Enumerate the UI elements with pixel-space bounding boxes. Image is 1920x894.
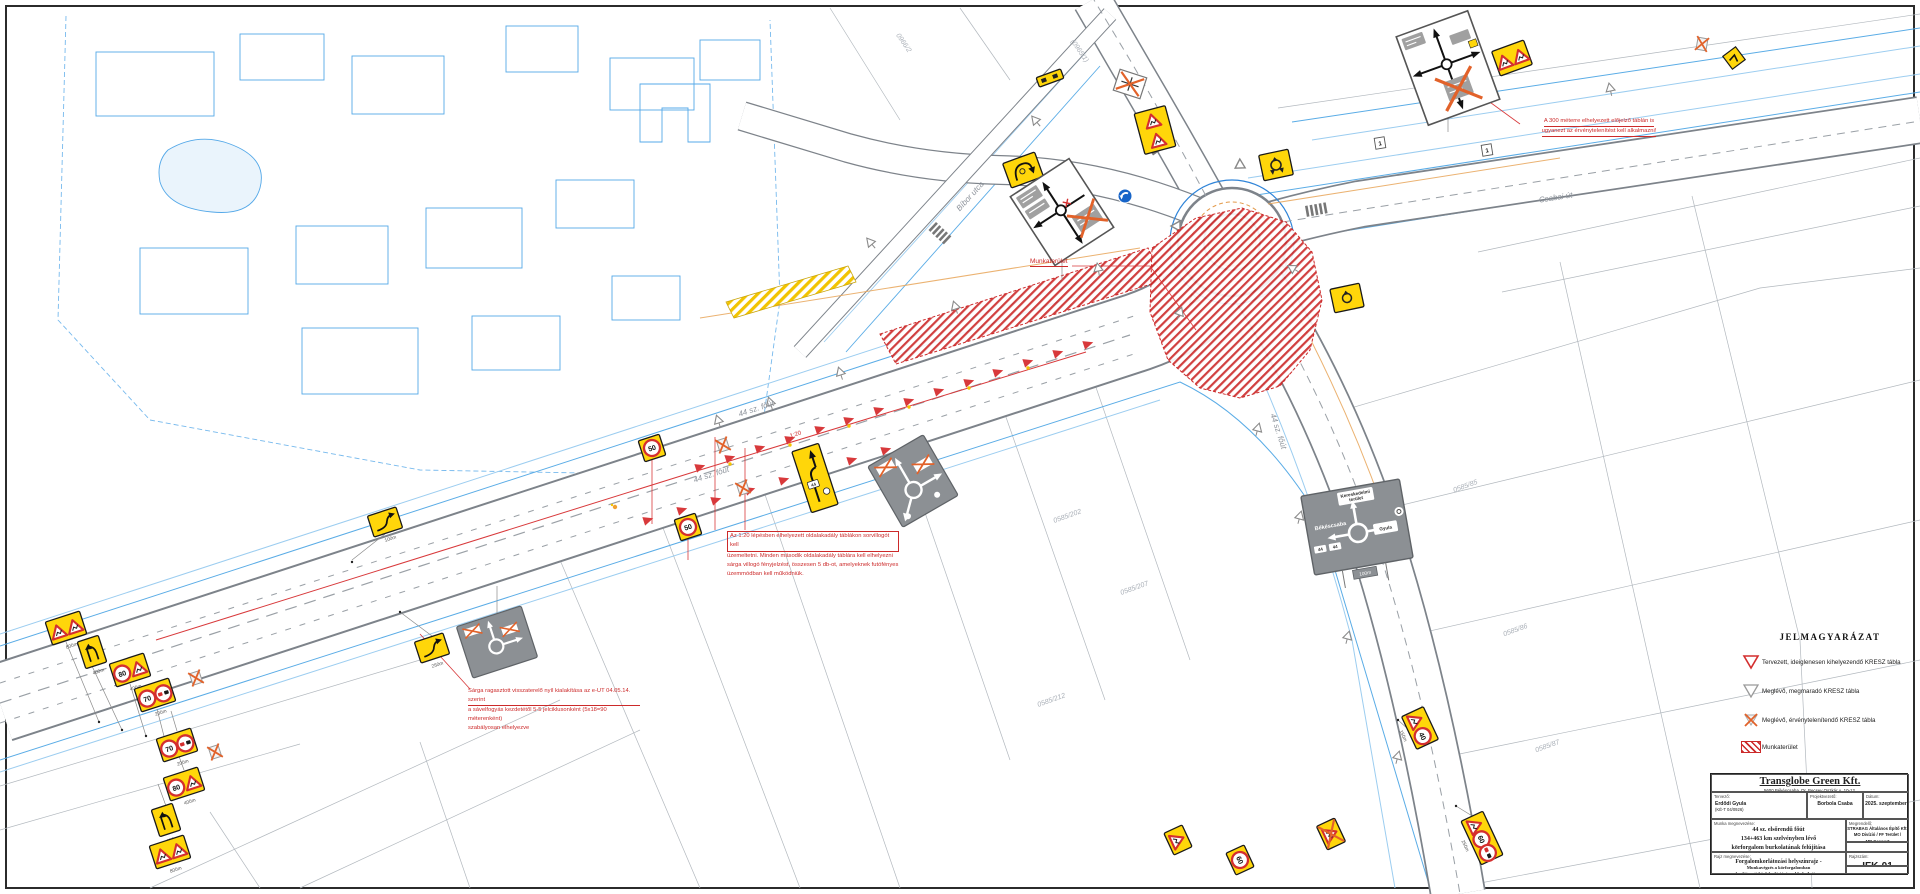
marker-1-b: 1: [1481, 144, 1493, 156]
sign-roadworks-small-a: [1164, 825, 1192, 855]
company-name: Transglobe Green Kft.: [1712, 776, 1908, 787]
svg-text:800m: 800m: [169, 865, 182, 874]
work-area-label: Munkaterület: [1030, 258, 1068, 267]
sign-roundabout-warning: [1259, 149, 1294, 181]
svg-text:0585/207: 0585/207: [1120, 580, 1151, 597]
svg-text:400m: 400m: [183, 797, 196, 806]
board-roundabout-gray-left: [456, 606, 537, 678]
sign-lane-shift-250: 250m: [414, 633, 452, 673]
work-area-icon: [1740, 741, 1762, 753]
sheet-frame: [6, 6, 1914, 888]
annotation-flasher-note: Az 1:20 lépésben elhelyezett oldalakadál…: [727, 531, 899, 579]
drawing-name-cell: Rajz megnevezése: Forgalomkorlátozási he…: [1711, 852, 1846, 874]
existing-sign-icon: [1740, 683, 1762, 699]
legend-title: JELMAGYARÁZAT: [1740, 632, 1920, 642]
svg-text:0585/212: 0585/212: [1037, 692, 1067, 709]
title-block: Transglobe Green Kft. 5600 Békéscsaba, D…: [1710, 773, 1908, 875]
sign-70-noovertake-200-b: 70 200m: [156, 728, 201, 771]
mandatory-direction-sign: [1118, 189, 1132, 203]
svg-text:44 sz. főút: 44 sz. főút: [1268, 412, 1288, 451]
worknum-cell: Munkaszám: TG-0905-25: [1846, 842, 1909, 852]
svg-text:0966/2: 0966/2: [894, 32, 912, 54]
buildings-block: [58, 16, 780, 475]
legend-item-workarea: Munkaterület: [1740, 741, 1920, 753]
scale-cell: Méretarány: 1:500: [1846, 866, 1909, 874]
title-block-company-cell: Transglobe Green Kft. 5600 Békéscsaba, D…: [1711, 774, 1909, 792]
invalidated-sign-icon: [1740, 712, 1762, 728]
sign-warning-pair-east: [1492, 40, 1533, 76]
drawing-number-cell: Rajzszám: IFK-01: [1846, 852, 1909, 866]
designer-cell: Tervező: Erdődi Gyula (KÉ-T 04/0926): [1711, 792, 1807, 819]
sign-roadworks-pair-800-b: 800m: [149, 835, 194, 878]
client-cell: Megrendelő: STRABAG Általános Építő Kft.…: [1846, 819, 1909, 842]
sign-diamond-chevron: [1721, 45, 1747, 71]
pm-cell: Projektvezető: Borbola Csaba: [1807, 792, 1863, 819]
sign-60-small: 60: [1226, 845, 1254, 875]
sign-roundabout-approach: [1330, 283, 1364, 313]
svg-text:0585/86: 0585/86: [1502, 623, 1528, 638]
svg-text:0585/87: 0585/87: [1534, 739, 1561, 755]
work-name-cell: Munka megnevezése: 44 sz. elsőrendű főút…: [1711, 819, 1846, 852]
drawing-sheet: 800m 400m 80 400m 70 200m 70 200m 80 400…: [0, 0, 1920, 894]
svg-text:0585/85: 0585/85: [1452, 479, 1478, 494]
svg-text:0585/202: 0585/202: [1053, 508, 1083, 525]
legend-item-existing: Meglévő, megmaradó KRESZ tábla: [1740, 683, 1920, 699]
legend-item-planned: Tervezett, ideiglenesen kihelyezendő KRE…: [1740, 654, 1920, 670]
annotation-arrow-note: Sárga ragasztott visszaterelő nyíl kiala…: [468, 687, 640, 733]
annotation-invalidate-note: A 300 méterre elhelyezett előjelző táblá…: [1516, 117, 1682, 137]
planned-sign-icon: [1740, 654, 1762, 670]
legend: JELMAGYARÁZAT Tervezett, ideiglenesen ki…: [1740, 632, 1920, 766]
svg-text:250m: 250m: [431, 660, 444, 669]
date-cell: Dátum: 2025. szeptember: [1863, 792, 1909, 819]
marker-1-a: 1: [1374, 137, 1386, 149]
sign-invalidated-yellow: [1316, 818, 1345, 850]
legend-item-invalidated: Meglévő, érvénytelenítendő KRESZ tábla: [1740, 712, 1920, 728]
board-cross-diagram-east: [1396, 11, 1500, 125]
